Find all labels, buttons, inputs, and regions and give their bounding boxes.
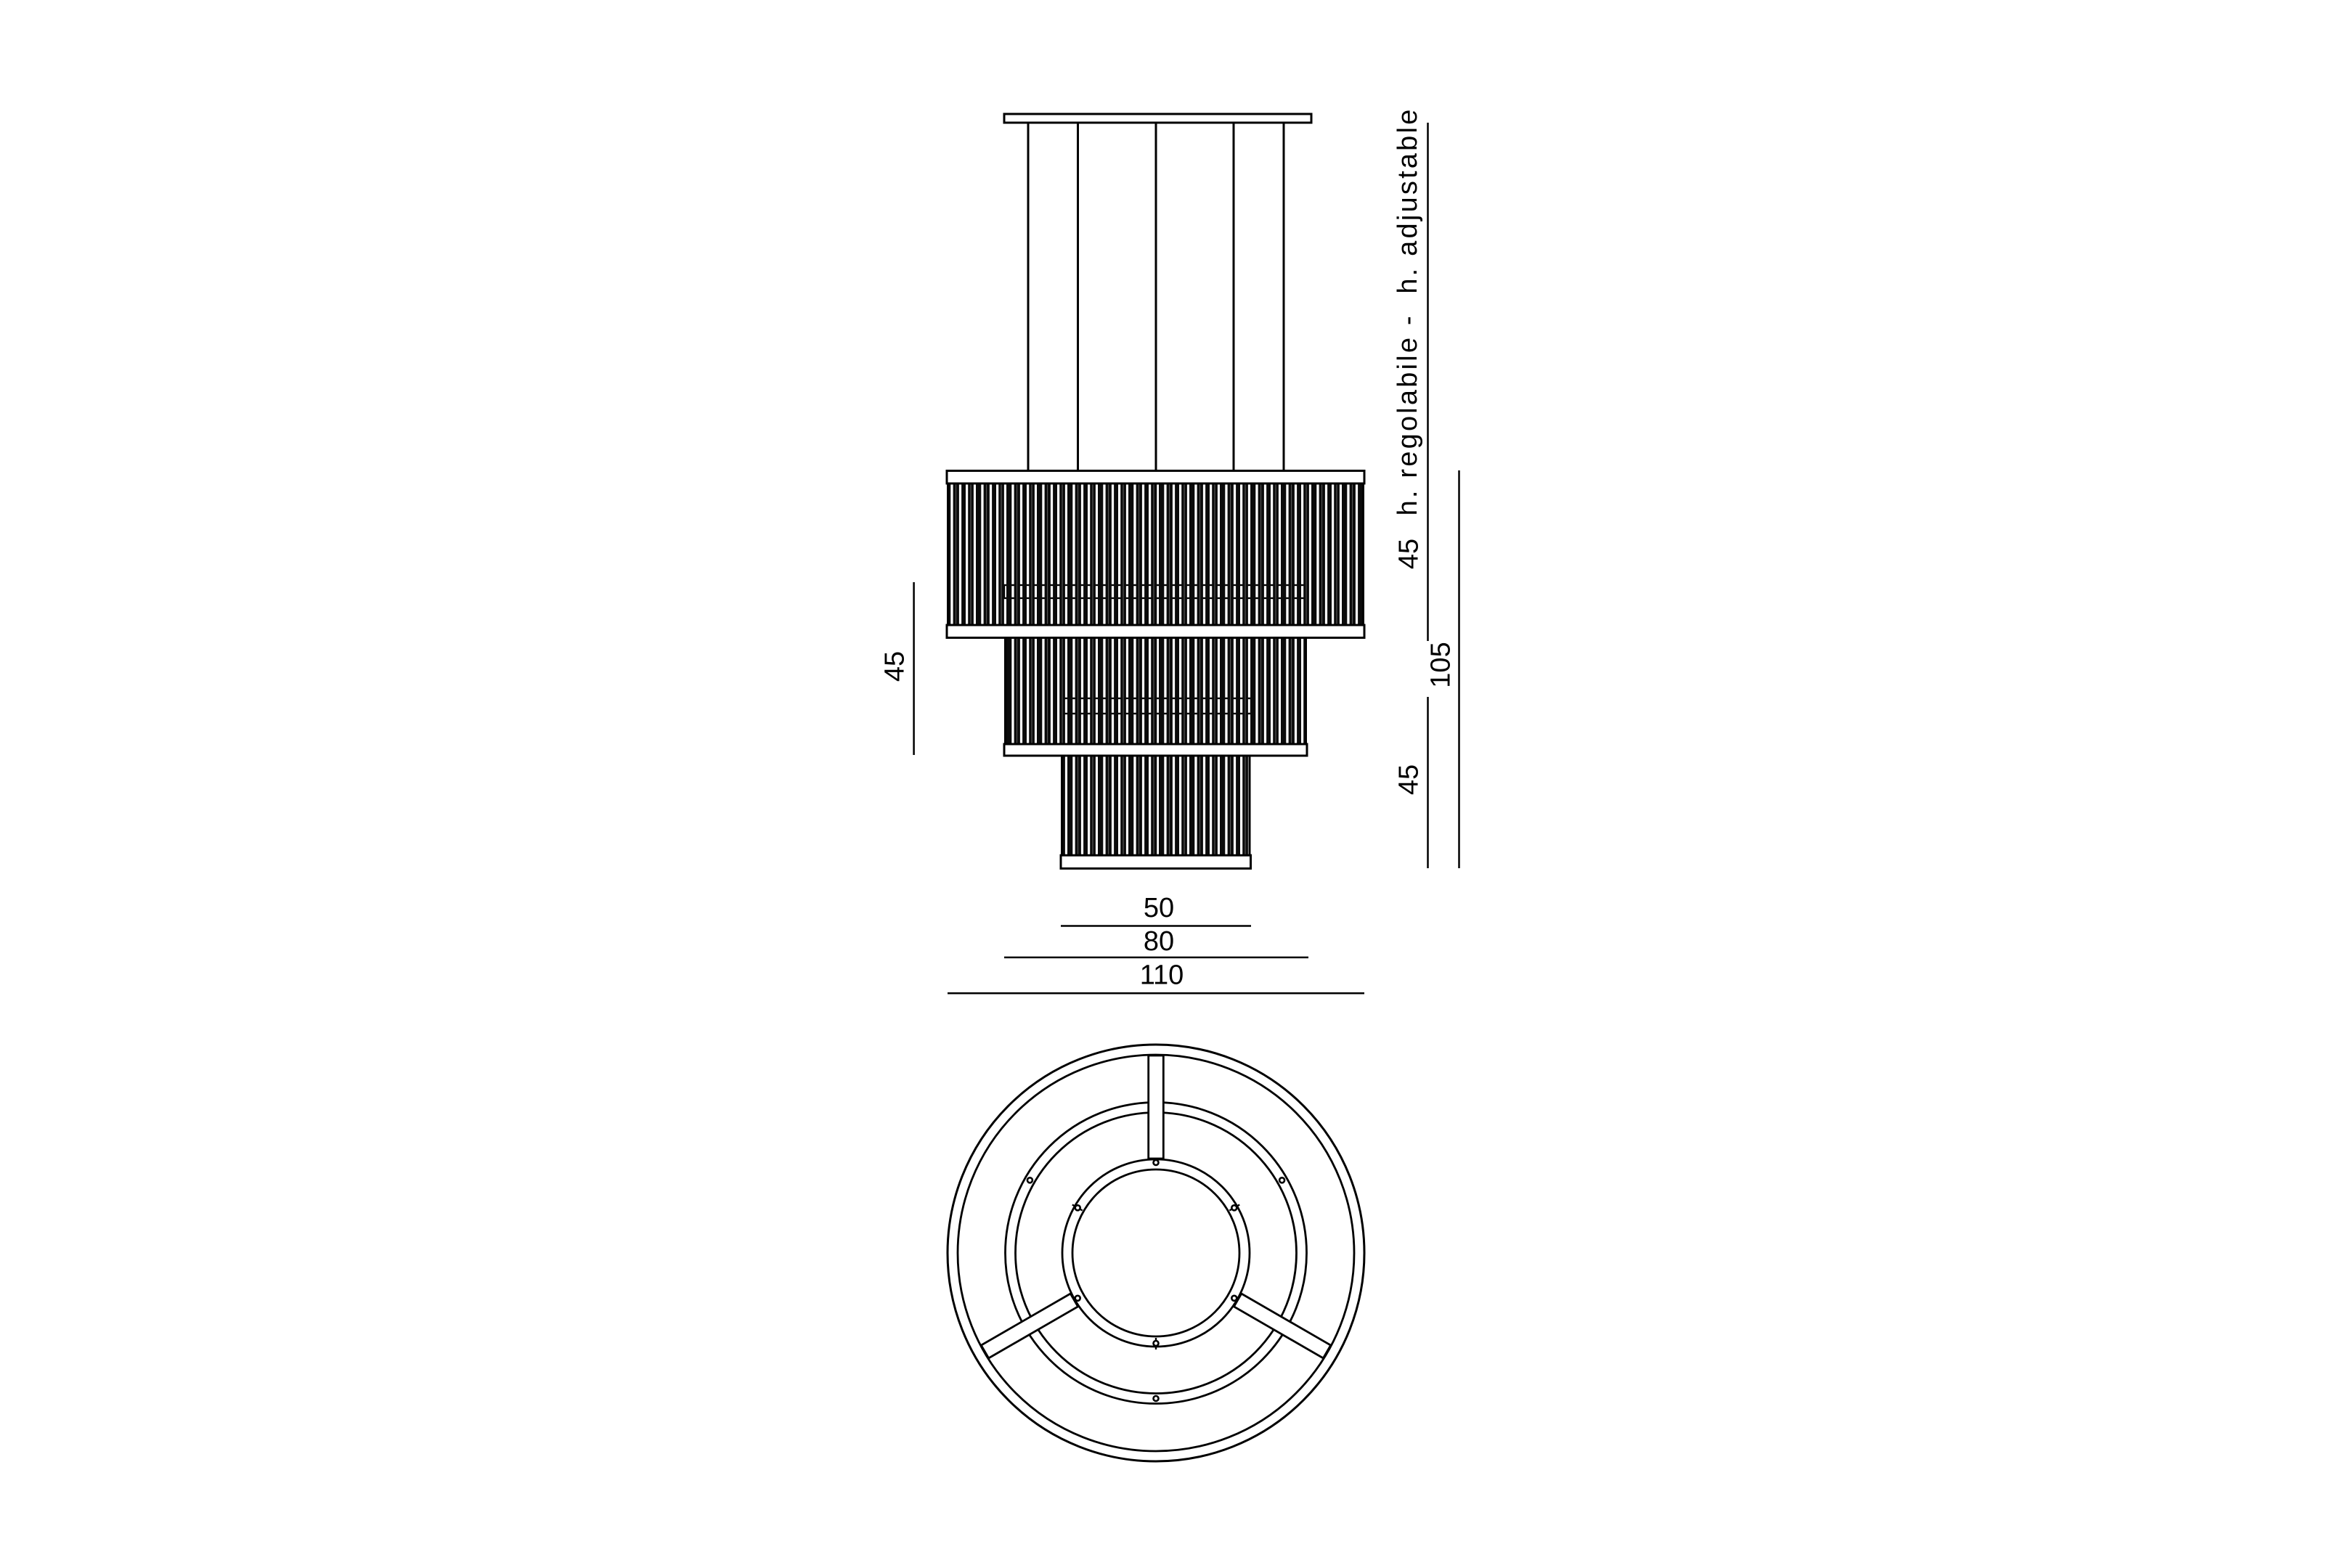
svg-text:105: 105 xyxy=(1426,642,1457,687)
svg-text:80: 80 xyxy=(1144,926,1174,957)
svg-text:45: 45 xyxy=(1394,764,1425,795)
svg-text:h. regolabile - h. adjustable: h. regolabile - h. adjustable xyxy=(1393,107,1423,516)
svg-text:50: 50 xyxy=(1144,893,1174,923)
svg-text:45: 45 xyxy=(1394,539,1425,569)
svg-text:110: 110 xyxy=(1140,960,1184,990)
svg-text:45: 45 xyxy=(880,651,911,682)
